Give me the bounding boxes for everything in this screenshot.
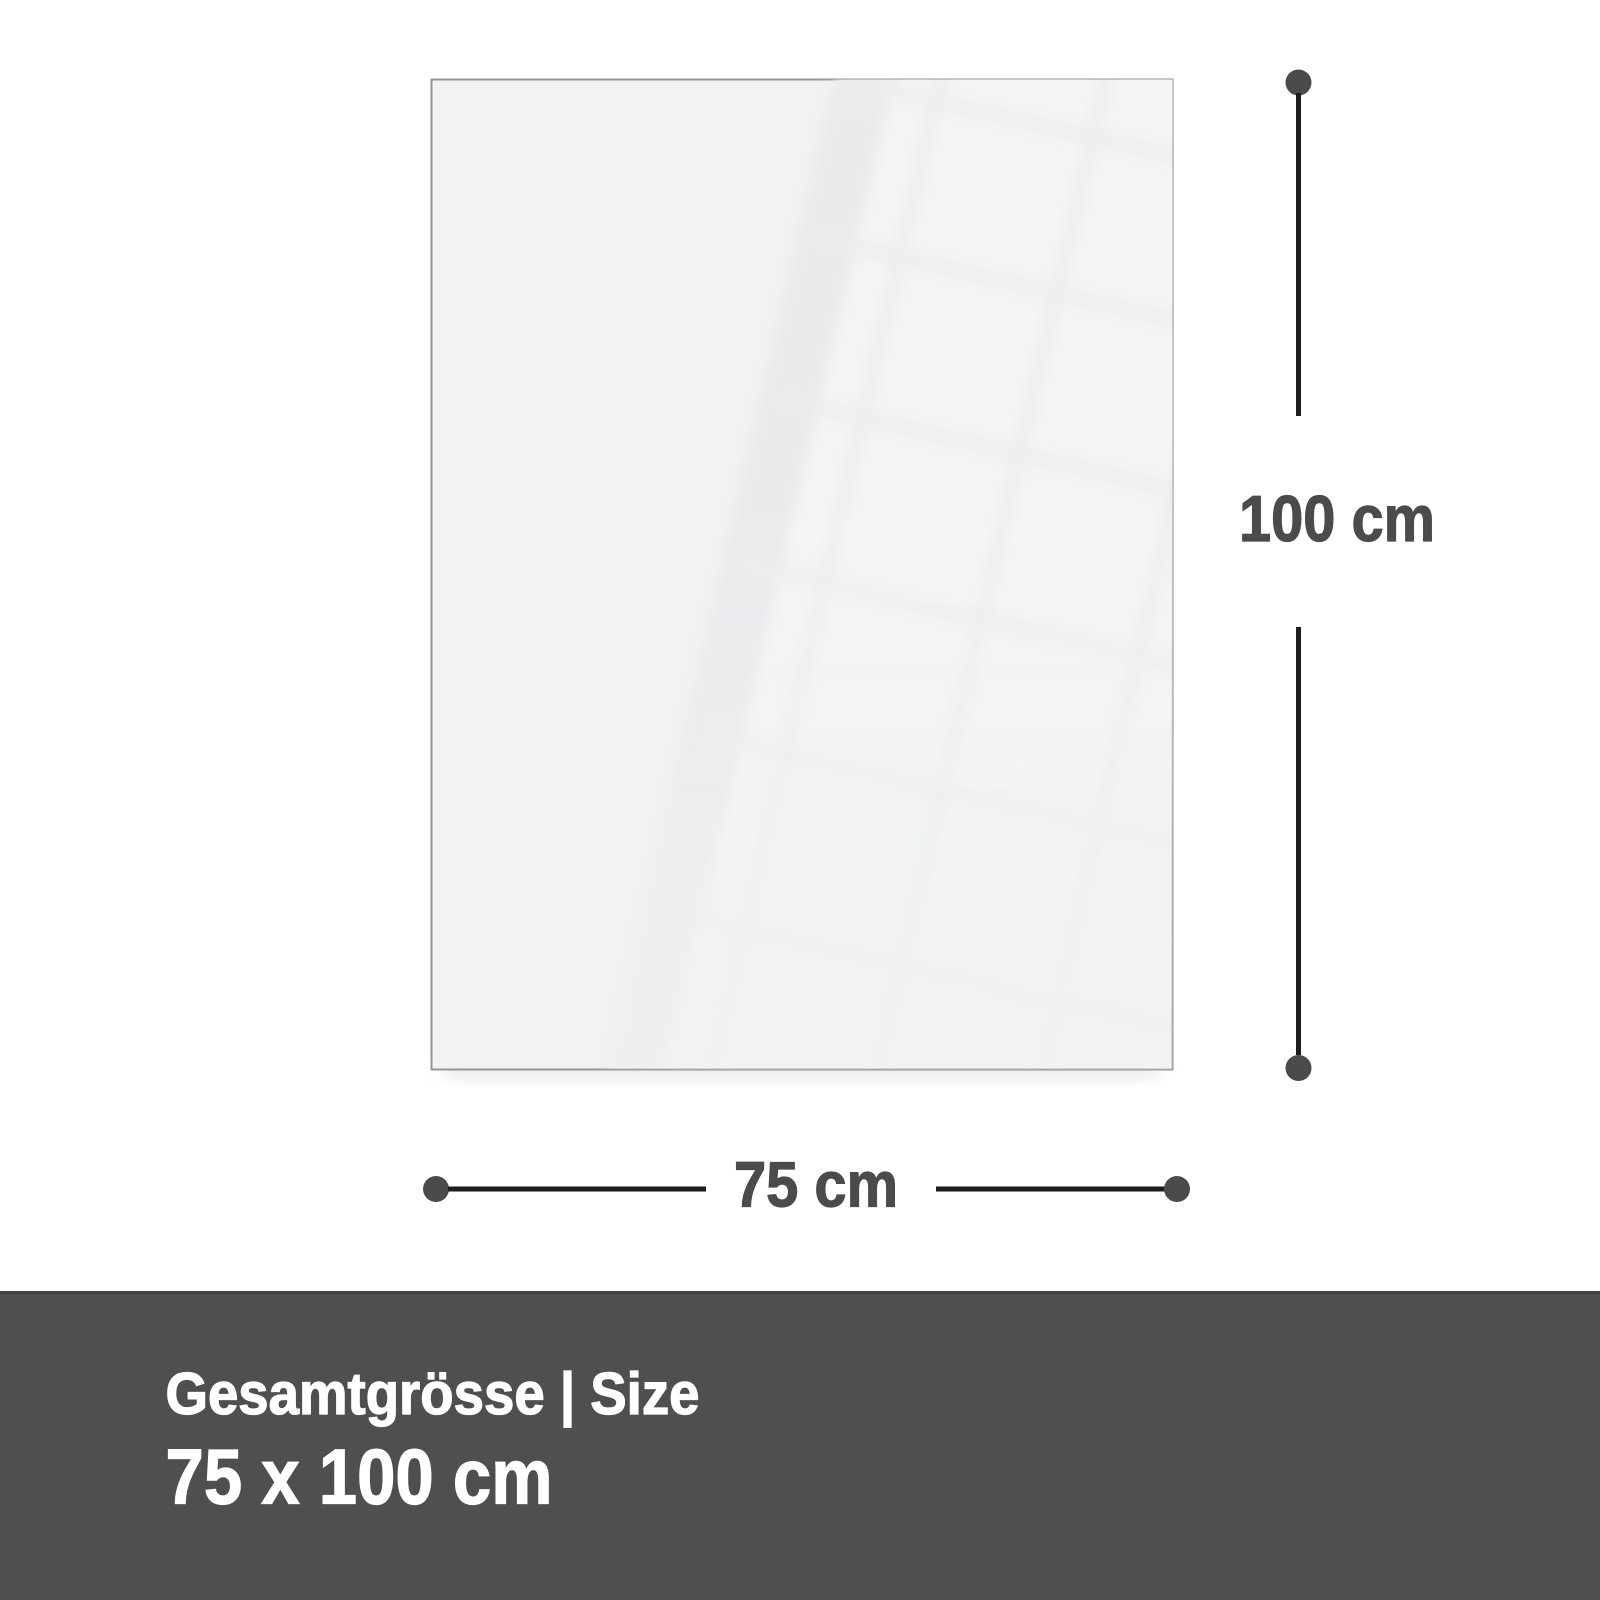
- svg-text:75 cm: 75 cm: [734, 1149, 898, 1221]
- svg-text:75 x 100 cm: 75 x 100 cm: [166, 1433, 553, 1521]
- svg-text:100 cm: 100 cm: [1239, 482, 1435, 555]
- svg-text:Gesamtgrösse | Size: Gesamtgrösse | Size: [166, 1361, 700, 1428]
